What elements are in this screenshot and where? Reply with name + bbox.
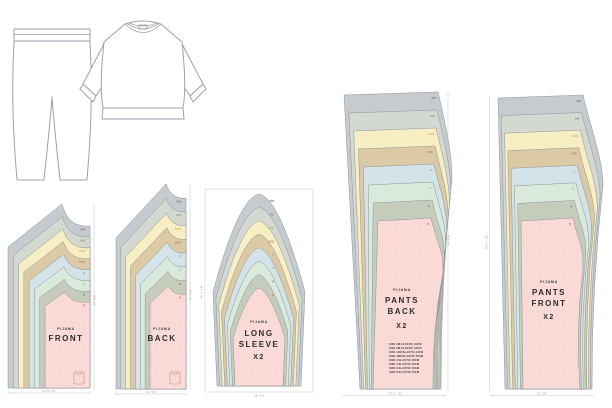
- pants-front-quantity-label: X2: [543, 314, 555, 321]
- pants-front-width-label: 30 CM: [537, 392, 548, 396]
- size-label: 3M: [80, 228, 85, 232]
- size-label: 6: [83, 293, 85, 297]
- size-label: 4: [83, 282, 85, 286]
- size-label: 8: [569, 222, 571, 226]
- elastic-note-line: SIZE 2 ELASTIC 48CM: [389, 358, 420, 362]
- back-width-label: 40 CM: [146, 390, 157, 394]
- pants-back-height-label: 89 CM: [447, 235, 451, 246]
- pants-back-width-dimension: 33.5 CM: [344, 392, 445, 398]
- pants-front-height-label: 88.5 CM: [485, 235, 489, 249]
- size-label: 6M: [430, 114, 435, 118]
- sleeve-quantity-label: X2: [253, 354, 265, 361]
- size-label: 8: [427, 222, 429, 226]
- size-label: 6M: [176, 213, 181, 217]
- size-label: 12M: [572, 134, 579, 138]
- size-label: 6: [272, 280, 274, 284]
- size-label: 2: [179, 254, 181, 258]
- pants-back-piece-title-line1: PANTS: [385, 296, 419, 305]
- size-label: 18M: [267, 239, 274, 243]
- front-width-label: 44.5 CM: [42, 389, 56, 393]
- size-label: 4: [572, 187, 574, 191]
- elastic-note-line: SIZE 8 ELASTIC 54CM: [389, 370, 420, 374]
- back-height-dimension: 57 CM: [189, 184, 193, 390]
- size-label: 12M: [174, 227, 181, 231]
- pants-flat-legs: [13, 41, 91, 180]
- size-label: 6M: [80, 238, 85, 242]
- size-label: 3M: [576, 99, 581, 103]
- front-piece: 3M6M12M18M2468PIJAMAFRONT: [8, 204, 90, 388]
- size-label: 2: [573, 169, 575, 173]
- pants-back-brand-label: PIJAMA: [393, 288, 411, 292]
- top-flat-body: [101, 21, 185, 108]
- pants-front-piece-title-line2: FRONT: [531, 299, 566, 308]
- front-brand-label: PIJAMA: [57, 327, 75, 331]
- sleeve-piece-title-line2: SLEEVE: [239, 340, 280, 349]
- pants-front-brand-label: PIJAMA: [540, 280, 558, 284]
- size-label: 4: [429, 186, 431, 190]
- size-label: 8: [83, 304, 85, 308]
- sleeve-height-label: 60.5 CM: [200, 285, 204, 299]
- back-piece-title: BACK: [147, 334, 176, 343]
- size-label: 18M: [426, 150, 433, 154]
- elastic-note-line: SIZE 4 ELASTIC 50CM: [389, 362, 420, 366]
- size-label: 3M: [269, 199, 274, 203]
- elastic-note-line: SIZE 6 ELASTIC 52CM: [389, 366, 420, 370]
- sleeve-brand-label: PIJAMA: [250, 320, 268, 324]
- pattern-sheet: 44.5 CM 54 CM 40 CM 57 CM 36 CM 60.5 CM …: [0, 0, 612, 408]
- back-width-dimension: 40 CM: [116, 390, 186, 396]
- elastic-note-line: SIZE 18M ELASTIC 46CM: [389, 354, 424, 358]
- elastic-note-line: SIZE 6M ELASTIC 42CM: [389, 346, 422, 350]
- size-label: 12M: [267, 226, 274, 230]
- front-height-label: 54 CM: [93, 295, 97, 306]
- sleeve-piece-title-line1: LONG: [244, 329, 273, 338]
- pattern-sheet-page: 44.5 CM 54 CM 40 CM 57 CM 36 CM 60.5 CM …: [0, 0, 612, 408]
- size-label: 18M: [570, 152, 577, 156]
- pants-back-quantity-label: X2: [396, 323, 408, 330]
- back-piece: 3M6M12M18M2468PIJAMABACK: [116, 184, 186, 389]
- elastic-note-line: SIZE 3M ELASTIC 40CM: [389, 342, 422, 346]
- front-height-dimension: 54 CM: [93, 204, 97, 390]
- pattern-pieces: 3M6M12M18M2468PIJAMAFRONT3M6M12M18M2468P…: [8, 92, 603, 389]
- pants-flat-waistband: [14, 29, 90, 41]
- size-label: 2: [83, 271, 85, 275]
- size-label: 6: [571, 204, 573, 208]
- size-label: 6: [179, 282, 181, 286]
- back-height-label: 57 CM: [189, 290, 193, 301]
- sleeve-piece: 3M6M12M18M2468PIJAMALONGSLEEVEX2: [213, 194, 305, 386]
- front-piece-title: FRONT: [48, 334, 83, 343]
- size-label: 8: [179, 296, 181, 300]
- pants-back-piece: 3M6M12M18M2468PIJAMAPANTSBACKX2SIZE 3M E…: [344, 92, 452, 389]
- top-flat-drawing: [80, 21, 206, 119]
- pants-front-height-dimension: 88.5 CM: [485, 95, 490, 390]
- size-label: 4: [179, 268, 181, 272]
- size-label: 12M: [78, 249, 85, 253]
- top-flat-hem-band: [102, 108, 184, 119]
- pants-front-piece-title-line1: PANTS: [532, 288, 566, 297]
- size-label: 18M: [78, 260, 85, 264]
- size-label: 8: [272, 293, 274, 297]
- sleeve-width-label: 36 CM: [254, 394, 265, 398]
- size-label: 6M: [575, 117, 580, 121]
- pants-back-width-label: 33.5 CM: [388, 392, 402, 396]
- pants-front-piece: 3M6M12M18M2468PIJAMAPANTSFRONTX2: [498, 95, 603, 389]
- pants-flat-drawing: [13, 29, 91, 180]
- size-label: 3M: [431, 96, 436, 100]
- back-brand-label: PIJAMA: [153, 327, 171, 331]
- size-label: 6M: [269, 212, 274, 216]
- size-label: 12M: [427, 132, 434, 136]
- size-label: 4: [272, 266, 274, 270]
- size-label: 2: [272, 253, 274, 257]
- size-label: 3M: [176, 200, 181, 204]
- size-label: 18M: [174, 241, 181, 245]
- elastic-note-line: SIZE 12M ELASTIC 44CM: [389, 350, 424, 354]
- front-width-dimension: 44.5 CM: [8, 389, 90, 395]
- pants-front-width-dimension: 30 CM: [492, 392, 592, 398]
- pants-back-piece-title-line2: BACK: [387, 307, 416, 316]
- size-label: 2: [430, 168, 432, 172]
- size-label: 6: [428, 204, 430, 208]
